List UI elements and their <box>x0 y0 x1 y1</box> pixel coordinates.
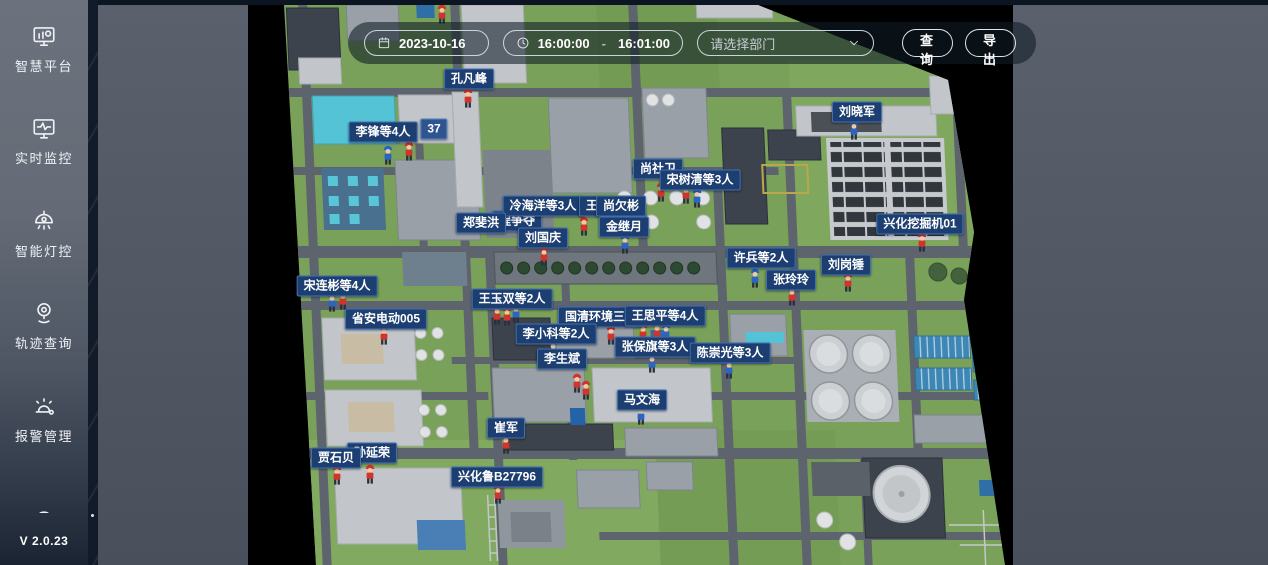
realtime-monitor-icon <box>31 115 57 141</box>
export-button[interactable]: 导出 <box>965 29 1016 57</box>
map-tag[interactable]: 兴化挖掘机01 <box>876 214 963 235</box>
person-marker-blue[interactable] <box>691 188 703 208</box>
sidebar-item-label: 智慧平台 <box>15 56 73 75</box>
map-tag[interactable]: 贾石贝 <box>311 448 361 469</box>
time-end: 16:01:00 <box>618 36 670 51</box>
map-tag[interactable]: 金继月 <box>599 217 649 238</box>
trajectory-query-icon <box>31 300 57 326</box>
sidebar-item-realtime-monitor[interactable]: 实时监控 <box>0 115 88 167</box>
time-range-picker[interactable]: 16:00:00 - 16:01:00 <box>503 30 684 56</box>
calendar-icon <box>377 36 391 50</box>
date-picker[interactable]: 2023-10-16 <box>364 30 489 56</box>
map-tag[interactable]: 刘国庆 <box>518 228 568 249</box>
map-tag[interactable]: 刘晓军 <box>832 102 882 123</box>
person-marker-red[interactable] <box>916 232 928 252</box>
date-value: 2023-10-16 <box>399 36 466 51</box>
sidebar-item-label: 轨迹查询 <box>15 333 73 352</box>
smart-light-icon <box>31 208 57 234</box>
time-separator: - <box>598 36 610 51</box>
person-marker-blue[interactable] <box>749 268 761 288</box>
map-tag[interactable]: 李小科等2人 <box>516 324 597 345</box>
map-tag[interactable]: 刘岗锤 <box>821 255 871 276</box>
person-marker-blue[interactable] <box>382 145 394 165</box>
map-tag[interactable]: 省安电动005 <box>345 309 427 330</box>
map-tag[interactable]: 张玲玲 <box>766 270 816 291</box>
map-tag[interactable]: 孔凡峰 <box>444 69 494 90</box>
map-tag[interactable]: 冷海洋等3人 <box>503 196 584 217</box>
map-overlay: 孔凡峰37李锋等4人刘晓军尚社卫宋树清等3人程争夺冷海洋等3人王文尚欠彬郑斐洪金… <box>248 5 1013 565</box>
map-tag[interactable]: 张保旗等3人 <box>615 337 696 358</box>
map-tag[interactable]: 陈崇光等3人 <box>690 343 771 364</box>
sidebar-item-smart-platform[interactable]: 智慧平台 <box>0 23 88 75</box>
sidebar-item-smart-light-control[interactable]: 智能灯控 <box>0 208 88 260</box>
person-marker-blue[interactable] <box>848 120 860 140</box>
smart-platform-icon <box>31 23 57 49</box>
map-tag[interactable]: 马文海 <box>617 390 667 411</box>
query-button[interactable]: 查询 <box>902 29 953 57</box>
query-toolbar: 2023-10-16 16:00:00 - 16:01:00 请选择部门 查询 … <box>348 22 1036 64</box>
person-marker-red[interactable] <box>403 141 415 161</box>
edge-strip <box>88 0 98 565</box>
sidebar-item-label: 报警管理 <box>15 426 73 445</box>
person-marker-red[interactable] <box>578 216 590 236</box>
headset-icon[interactable] <box>31 496 57 513</box>
chevron-down-icon <box>847 36 861 50</box>
map-tag[interactable]: 王玉双等2人 <box>472 289 553 310</box>
plant-map[interactable]: 孔凡峰37李锋等4人刘晓军尚社卫宋树清等3人程争夺冷海洋等3人王文尚欠彬郑斐洪金… <box>248 5 1013 565</box>
sidebar-item-label: 智能灯控 <box>15 241 73 260</box>
time-start: 16:00:00 <box>538 36 590 51</box>
edge-dot <box>91 514 94 517</box>
map-tag[interactable]: 宋树清等3人 <box>660 170 741 191</box>
sidebar: 智慧平台 实时监控 智能灯控 轨迹查询 报警管理 V 2.0.23 <box>0 0 88 565</box>
map-tag[interactable]: 尚欠彬 <box>596 196 646 217</box>
sidebar-item-alarm-management[interactable]: 报警管理 <box>0 393 88 445</box>
app-version: V 2.0.23 <box>0 534 88 548</box>
map-tag[interactable]: 宋连彬等4人 <box>297 276 378 297</box>
department-placeholder: 请选择部门 <box>710 34 775 53</box>
top-strip <box>0 0 1268 5</box>
map-tag[interactable]: 郑斐洪 <box>456 213 506 234</box>
department-select[interactable]: 请选择部门 <box>697 30 874 56</box>
map-tag[interactable]: 李生斌 <box>537 349 587 370</box>
person-marker-red[interactable] <box>538 246 550 266</box>
map-tag[interactable]: 许兵等2人 <box>727 248 796 269</box>
clock-icon <box>516 36 530 50</box>
map-tag[interactable]: 37 <box>420 119 447 140</box>
person-marker-red[interactable] <box>580 380 592 400</box>
sidebar-item-label: 实时监控 <box>15 148 73 167</box>
person-marker-red[interactable] <box>462 88 474 108</box>
map-tag[interactable]: 王思平等4人 <box>625 306 706 327</box>
map-tag[interactable]: 兴化鲁B27796 <box>451 467 543 488</box>
map-tag[interactable]: 李锋等4人 <box>349 122 418 143</box>
alarm-bell-icon <box>31 393 57 419</box>
person-marker-red[interactable] <box>364 464 376 484</box>
sidebar-item-trajectory-query[interactable]: 轨迹查询 <box>0 300 88 352</box>
map-tag[interactable]: 崔军 <box>487 418 525 439</box>
